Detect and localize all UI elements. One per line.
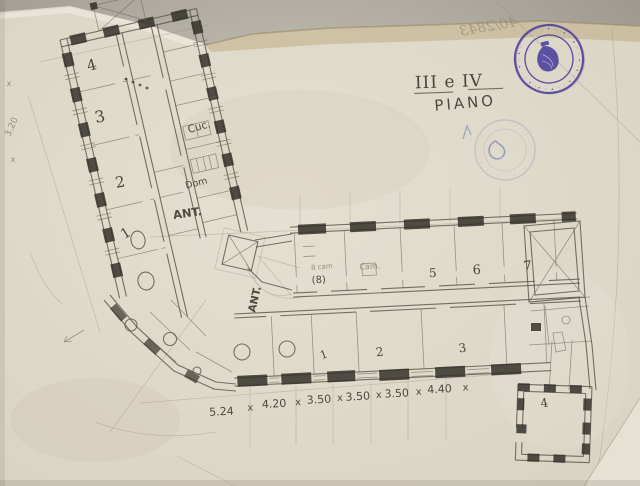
scanned-floor-plan-page: 4 3 2 1 Cuc. Dom ANT. ANT. 8 cam (8) Cam… — [0, 0, 640, 486]
dimension-mark: x — [295, 397, 302, 408]
plan-canvas: 4 3 2 1 Cuc. Dom ANT. ANT. 8 cam (8) Cam… — [0, 0, 640, 486]
dimension-mark: x — [415, 387, 422, 398]
dimension-mark: x — [337, 393, 344, 404]
room-number-top-5: 5 — [429, 266, 437, 280]
floor-title: III e IV — [415, 71, 484, 93]
left-dimension-mark: x — [7, 79, 12, 88]
dimension-value: 4.20 — [262, 397, 287, 411]
dimension-mark: x — [247, 403, 254, 414]
room8-label: (8) — [311, 275, 326, 287]
dimension-value: 3.50 — [306, 392, 331, 406]
room-number-top-7: 7 — [523, 259, 533, 275]
dimension-value: 3.50 — [384, 386, 409, 400]
dimension-mark: x — [462, 382, 469, 393]
dimension-value: 3.50 — [345, 389, 370, 403]
room-number-bottom-2: 2 — [375, 345, 384, 360]
dimension-value: 5.24 — [209, 405, 234, 419]
dimension-value: 4.40 — [427, 382, 452, 396]
left-dimension-mark: x — [11, 155, 16, 164]
room-number-top-6: 6 — [472, 263, 481, 278]
dimension-mark: x — [376, 390, 383, 401]
cam-label: Cam. — [359, 261, 380, 271]
